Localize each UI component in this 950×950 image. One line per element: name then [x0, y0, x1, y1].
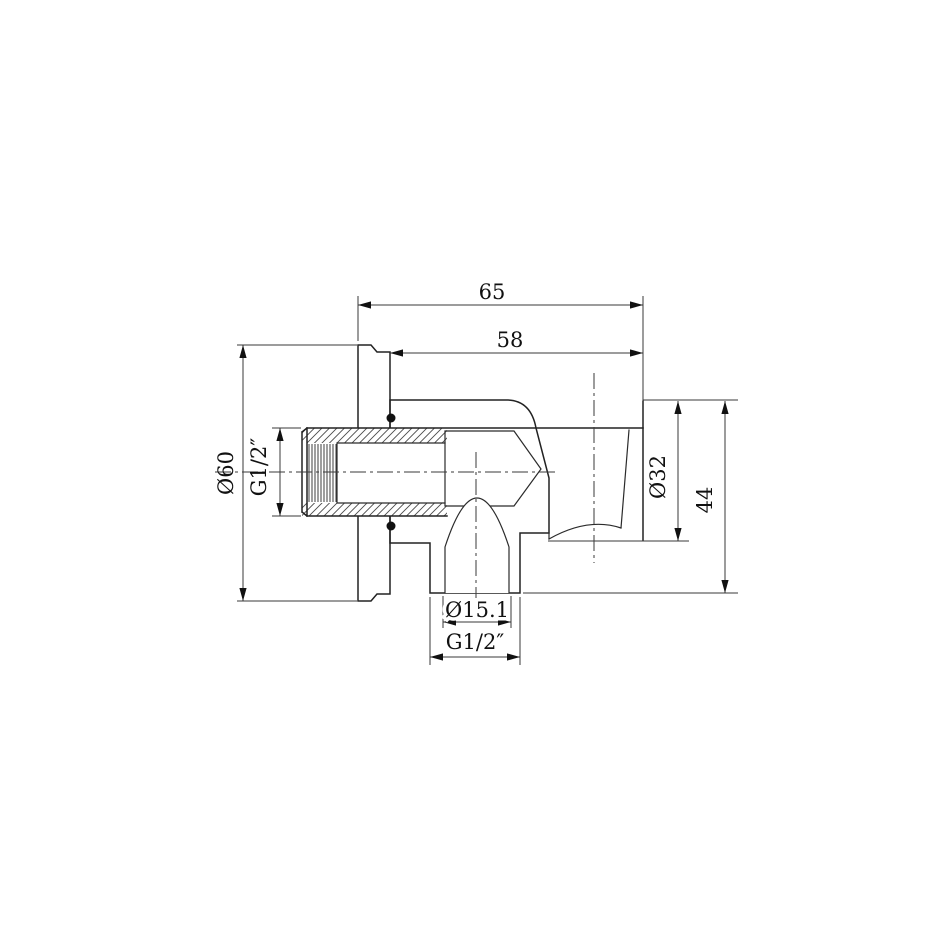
technical-drawing: 65 58 Ø60 G1/2″ Ø32 44 Ø15.1 G1/2″ [0, 0, 950, 950]
o-ring-bottom [387, 522, 396, 531]
dim-holder-height-label: 44 [693, 487, 717, 514]
o-ring-top [387, 414, 396, 423]
dim-overall-depth-label: 65 [479, 280, 506, 304]
dim-flange-diameter-label: Ø60 [214, 451, 238, 495]
dim-outlet-bore-label: Ø15.1 [445, 598, 509, 622]
drawing-canvas: 65 58 Ø60 G1/2″ Ø32 44 Ø15.1 G1/2″ [0, 0, 950, 950]
dimension-labels: 65 58 Ø60 G1/2″ Ø32 44 Ø15.1 G1/2″ [214, 280, 717, 654]
valve-chamber [445, 431, 541, 506]
outlet-bore [445, 498, 509, 593]
dim-body-depth-label: 58 [497, 328, 524, 352]
handset-holder-view [549, 401, 643, 540]
dim-holder-diameter-label: Ø32 [646, 455, 670, 499]
dim-outlet-thread-label: G1/2″ [446, 630, 505, 654]
dim-inlet-thread-label: G1/2″ [247, 438, 271, 497]
